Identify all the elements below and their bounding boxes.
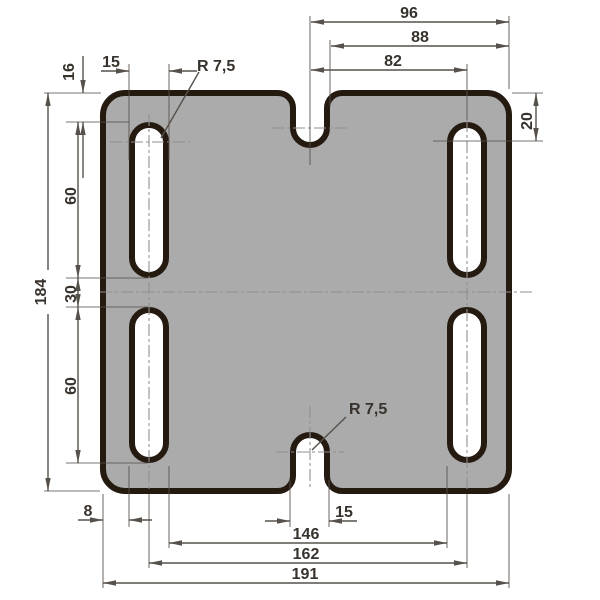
radius-label-top: R 7,5 <box>197 58 235 75</box>
radius-label-bottom: R 7,5 <box>349 401 387 418</box>
plate-dimension-drawing: 96 88 82 20 16 15 R 7,5 184 60 30 60 8 1… <box>0 0 600 600</box>
dim-label-15-top: 15 <box>102 54 120 71</box>
dim-label-16: 16 <box>61 63 78 81</box>
dim-label-30: 30 <box>63 285 80 303</box>
dim-label-146: 146 <box>293 526 320 543</box>
dim-label-20: 20 <box>519 112 536 130</box>
dim-label-82: 82 <box>384 53 402 70</box>
dim-label-15-bottom: 15 <box>335 504 353 521</box>
technical-drawing-canvas: 96 88 82 20 16 15 R 7,5 184 60 30 60 8 1… <box>0 0 600 600</box>
dim-label-60-top: 60 <box>63 187 80 205</box>
dim-label-162: 162 <box>293 546 320 563</box>
dim-label-8: 8 <box>84 503 93 520</box>
dim-label-60-bottom: 60 <box>63 377 80 395</box>
dim-label-191: 191 <box>292 566 319 583</box>
dim-label-96: 96 <box>400 5 418 22</box>
dim-label-184: 184 <box>33 279 50 306</box>
dim-label-88: 88 <box>411 29 429 46</box>
